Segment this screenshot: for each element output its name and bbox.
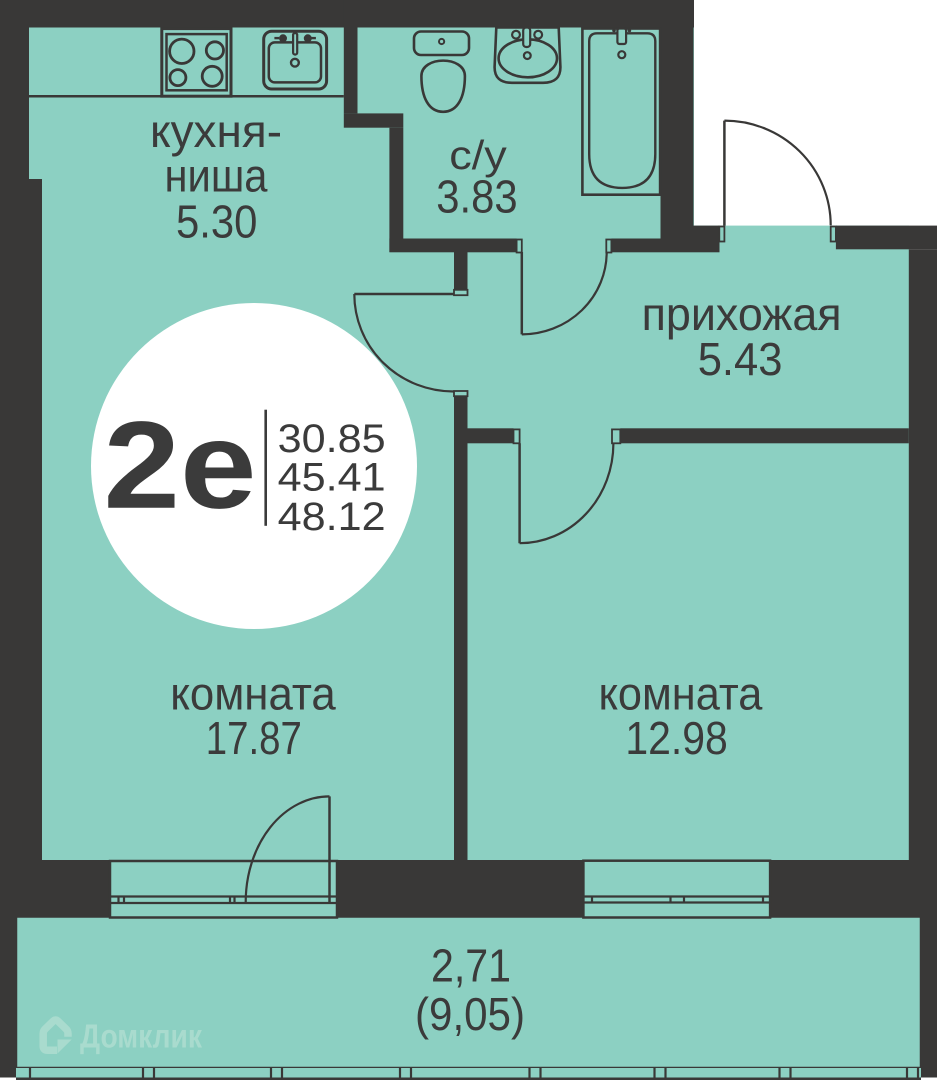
- svg-text:2,71: 2,71: [431, 940, 511, 992]
- svg-text:5.30: 5.30: [176, 195, 257, 247]
- svg-text:2е: 2е: [104, 397, 257, 535]
- svg-text:3.83: 3.83: [436, 171, 517, 223]
- svg-text:45.41: 45.41: [278, 456, 386, 500]
- svg-text:30.85: 30.85: [278, 417, 386, 461]
- svg-text:(9,05): (9,05): [415, 988, 525, 1040]
- svg-text:5.43: 5.43: [698, 333, 783, 385]
- svg-text:48.12: 48.12: [278, 495, 386, 539]
- svg-text:12.98: 12.98: [625, 712, 728, 764]
- svg-text:Домклик: Домклик: [80, 1018, 202, 1055]
- svg-text:прихожая: прихожая: [642, 288, 842, 340]
- svg-text:17.87: 17.87: [206, 712, 302, 764]
- svg-text:ниша: ниша: [165, 150, 268, 202]
